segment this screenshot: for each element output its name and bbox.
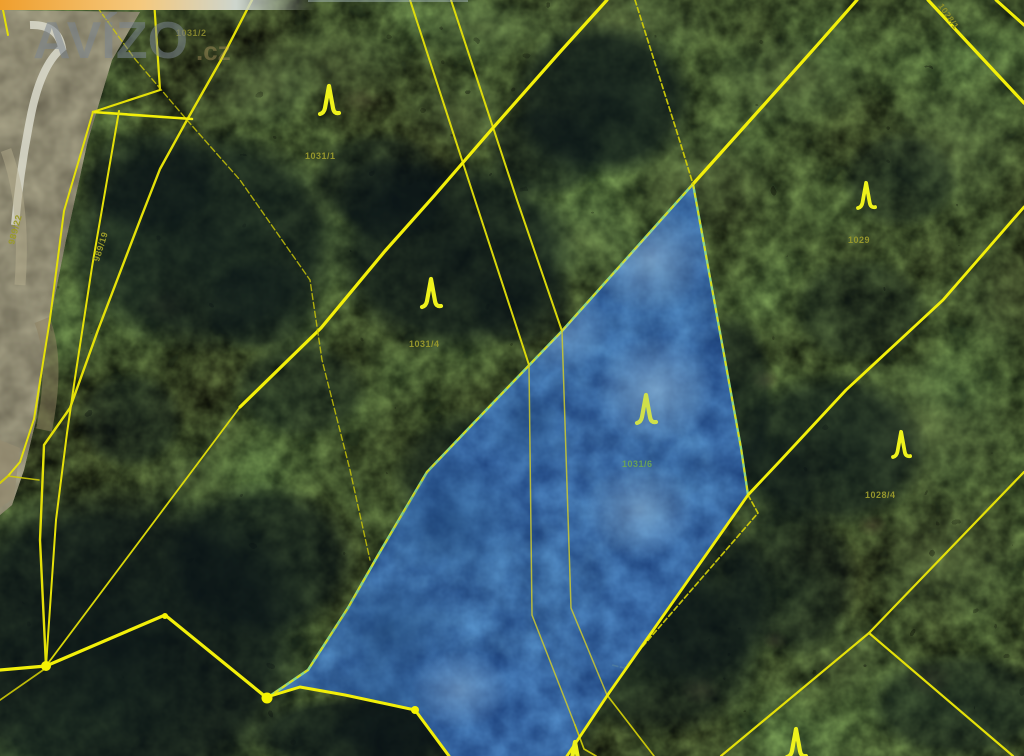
- svg-text:.cz: .cz: [196, 36, 231, 66]
- svg-text:1031/4: 1031/4: [409, 339, 440, 349]
- svg-text:1029: 1029: [848, 235, 870, 245]
- svg-text:1031/1: 1031/1: [305, 151, 336, 161]
- svg-text:1031/6: 1031/6: [622, 459, 653, 469]
- svg-text:1028/4: 1028/4: [865, 490, 896, 500]
- svg-text:AVÍZO: AVÍZO: [33, 12, 188, 70]
